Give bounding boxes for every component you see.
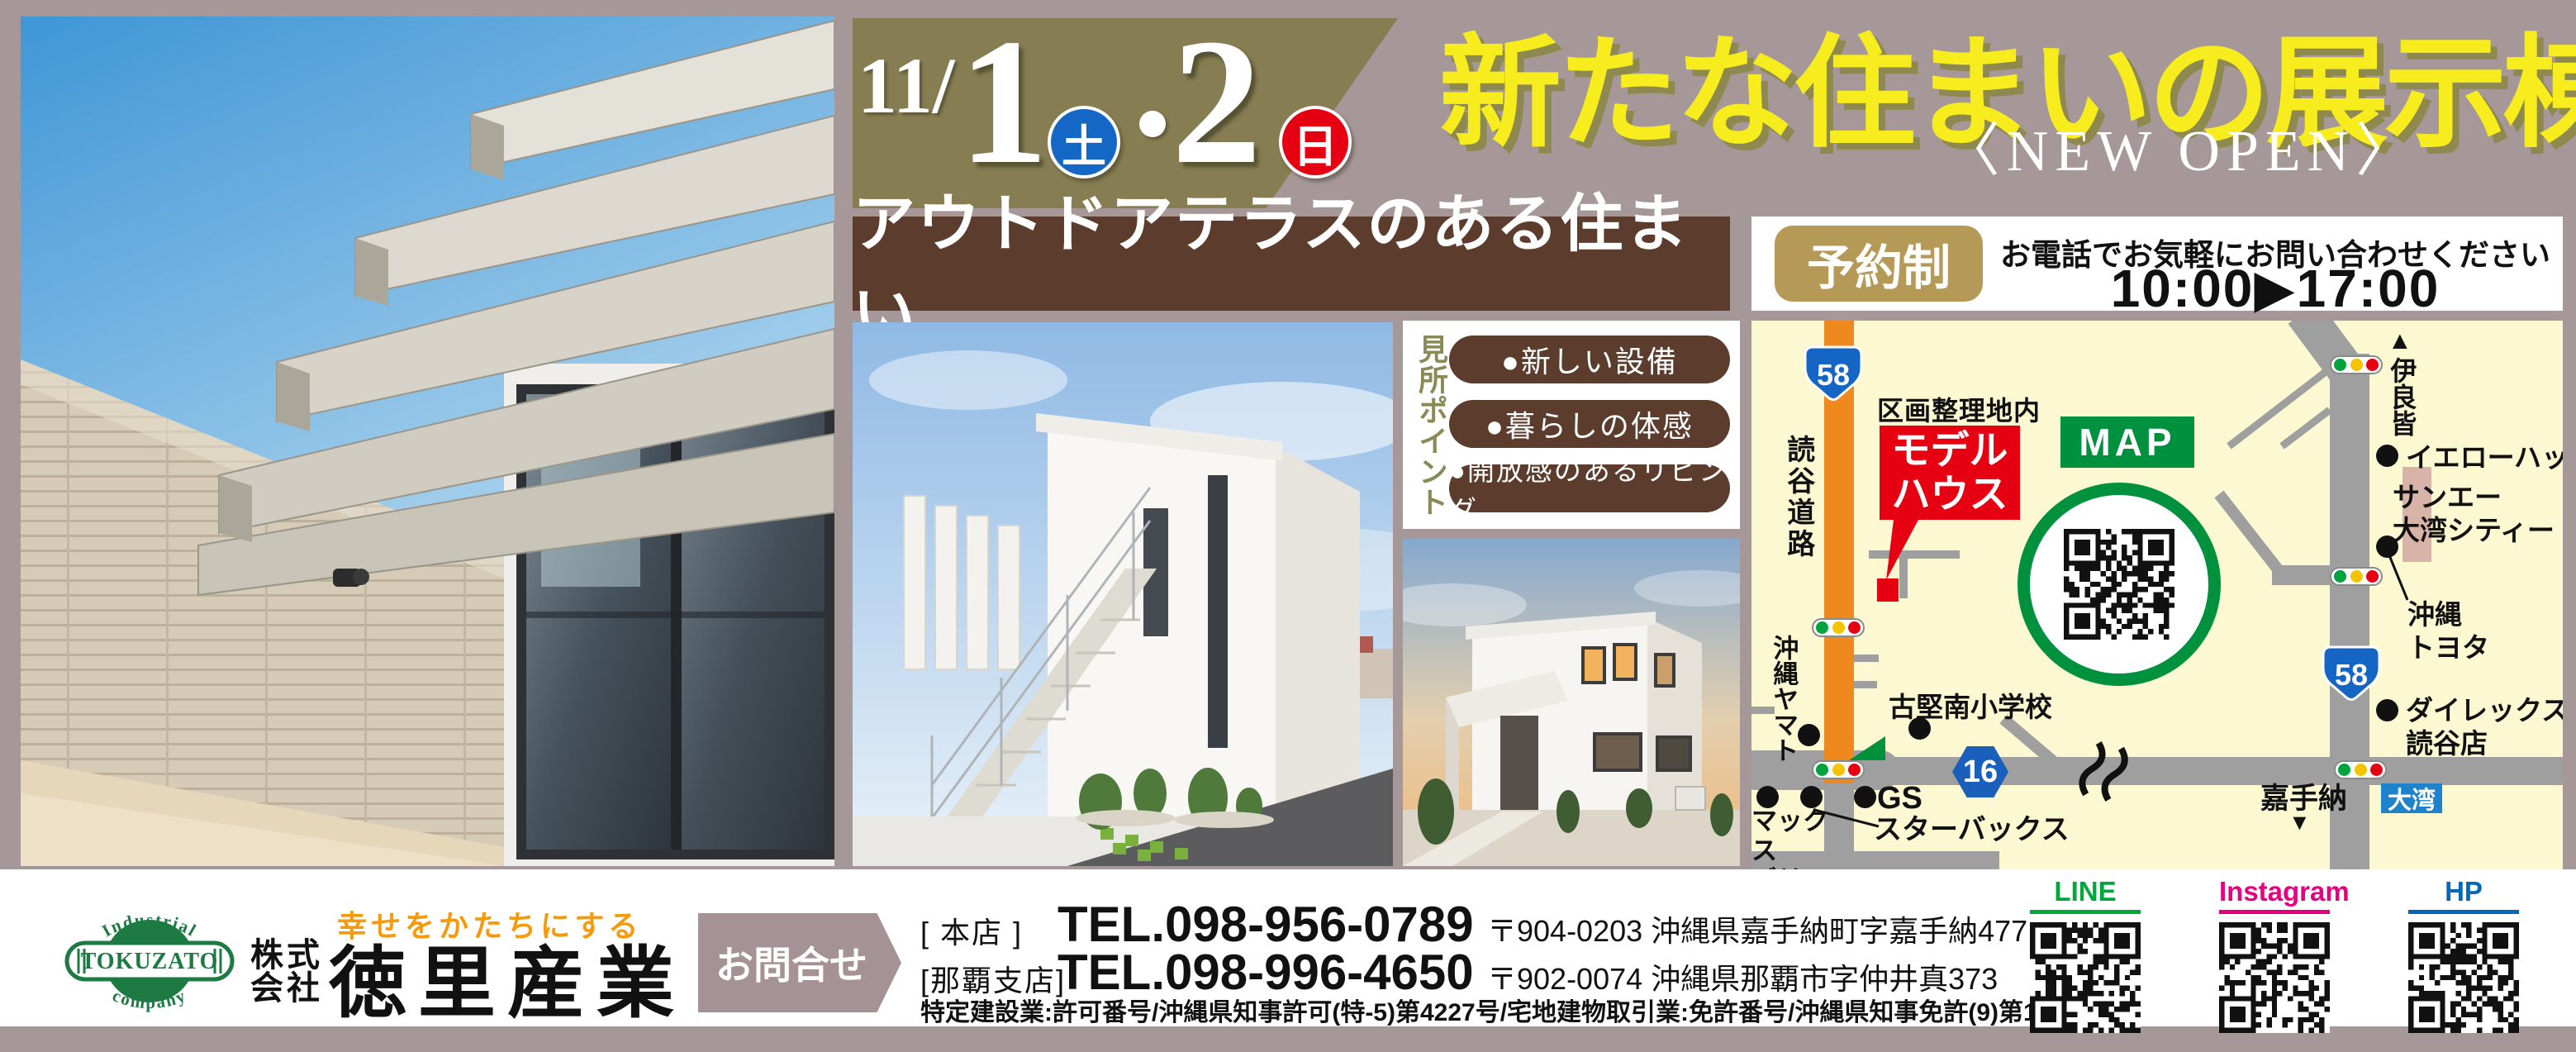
landmark-dot	[2376, 536, 2398, 558]
terrace-photo-art	[21, 17, 834, 866]
route-58-number: 58	[2322, 647, 2381, 703]
point-item-1: ●新しい設備	[1449, 336, 1730, 383]
hp-qr-code	[2408, 922, 2519, 1033]
landmark-dot	[1908, 717, 1931, 740]
yellowhat-label: イエローハット	[2406, 441, 2563, 474]
date-day1-weekday-badge: 土	[1048, 106, 1120, 179]
tokuzato-logo-art: Industrial company TOKUZATO	[62, 904, 237, 1018]
dairex-label: ダイレックス 読谷店	[2406, 694, 2563, 759]
sanei-label: サンエー 大湾シティー	[2393, 481, 2563, 546]
sanei-line2: 大湾シティー	[2393, 515, 2555, 545]
exterior-photo-day-art	[853, 322, 1393, 866]
date-day2: 2	[1172, 3, 1262, 202]
direction-down-marker: ▼	[2288, 810, 2311, 835]
branch-label-honten: [ 本店 ]	[920, 909, 1023, 952]
toyota-line1: 沖縄	[2407, 599, 2462, 630]
traffic-light-icon	[2334, 760, 2387, 779]
model-house-line2: ハウス	[1892, 473, 2008, 516]
exterior-photo-dusk-art	[1403, 539, 1740, 866]
reservation-badge: 予約制	[1775, 226, 1983, 302]
points-heading: 見所ポイント	[1409, 334, 1452, 517]
access-map: 58 58 16 区画整理地内 モデル ハウス MAP 読谷道路 ▲ 伊良皆 イ…	[1751, 321, 2563, 869]
new-open-subtitle: 〈NEW OPEN〉	[1818, 104, 2545, 188]
line-label: LINE	[2030, 876, 2141, 907]
traffic-light-icon	[1812, 760, 1865, 779]
corp-type-line2: 会社	[250, 969, 323, 1007]
route-58-number: 58	[1804, 347, 1863, 403]
hp-underline	[2408, 910, 2519, 914]
sanei-line1: サンエー	[2393, 482, 2502, 512]
traffic-light-icon	[2330, 567, 2383, 586]
point-item-2: ●暮らしの体感	[1449, 400, 1730, 448]
terrace-photo	[21, 17, 834, 866]
okinawa-toyota-label: 沖縄 トヨタ	[2407, 598, 2540, 664]
line-qr-block: LINE	[2030, 876, 2141, 1033]
date-month-num: 11	[858, 41, 933, 130]
maxvalu-label: マックス バリュ	[1751, 807, 1851, 869]
corp-type-line1: 株式	[250, 936, 323, 973]
gs-label: GS	[1877, 780, 1922, 818]
dairex-line1: ダイレックス	[2406, 695, 2563, 726]
okinawa-yamato-label: 沖縄ヤマト	[1768, 635, 1799, 763]
hp-qr-block: HP	[2408, 876, 2519, 1033]
date-day1: 1	[958, 3, 1048, 202]
irami-label: 伊良皆	[2386, 357, 2417, 436]
traffic-light-icon	[2330, 355, 2383, 374]
toyota-line2: トヨタ	[2407, 632, 2489, 663]
reservation-box: 予約制 お電話でお気軽にお問い合わせください♪ 10:00▶17:00	[1751, 217, 2563, 311]
landmark-dot	[1756, 786, 1779, 808]
license-text: 特定建設業:許可番号/沖縄県知事許可(特-5)第4227号/宅地建物取引業:免許…	[920, 992, 2103, 1028]
model-house-line1: モデル	[1892, 429, 2008, 473]
svg-text:TOKUZATO: TOKUZATO	[81, 949, 219, 974]
line-underline	[2030, 910, 2141, 914]
instagram-underline	[2219, 910, 2330, 914]
catch-copy-bar: アウトドアテラスのある住まい	[853, 217, 1730, 311]
flyer: 11/ 1 土 2 日 新たな住まいの展示棟 〈NEW OPEN〉 アウトドアテ…	[0, 0, 2576, 1052]
point-item-3: ●開放感のあるリビング	[1449, 464, 1730, 512]
contact-label-arrow: お問合せ	[698, 913, 901, 1012]
maxvalu-line1: マックス	[1751, 807, 1828, 865]
hp-label: HP	[2408, 876, 2519, 907]
date-day2-weekday-badge: 日	[1279, 106, 1352, 179]
map-heading: MAP	[2060, 417, 2194, 468]
line-qr-code	[2030, 922, 2141, 1033]
landmark-dot	[2376, 699, 2398, 721]
footer-band: Industrial company TOKUZATO 株式 会社 幸せをかたち…	[0, 869, 2576, 1026]
open-hours: 10:00▶17:00	[1996, 258, 2555, 320]
district-label: 区画整理地内	[1877, 395, 2041, 426]
company-name: 徳里産業	[329, 921, 686, 1033]
landmark-dot	[2376, 445, 2398, 467]
date-slash: /	[933, 41, 955, 130]
traffic-light-icon	[1812, 618, 1865, 637]
instagram-qr-block: Instagram	[2219, 876, 2330, 1033]
landmark-dot	[1798, 724, 1820, 746]
exterior-photo-day	[853, 322, 1393, 866]
date-month: 11/	[858, 40, 954, 131]
instagram-qr-code	[2219, 922, 2330, 1033]
date-separator-dot	[1139, 111, 1166, 137]
model-house-label: モデル ハウス	[1880, 426, 2020, 520]
exterior-photo-dusk	[1403, 539, 1740, 866]
starbucks-label: スターバックス	[1874, 813, 2070, 847]
corp-type: 株式 会社	[250, 939, 323, 1005]
yomitan-road-label: 読谷道路	[1781, 435, 1815, 560]
map-qr-code	[2064, 529, 2174, 640]
direction-up-marker: ▲	[2388, 327, 2412, 355]
route-58-shield-bottom: 58	[2322, 644, 2381, 703]
owan-label: 大湾	[2381, 783, 2442, 813]
instagram-label: Instagram	[2219, 876, 2330, 907]
tokuzato-logo: Industrial company TOKUZATO	[62, 904, 237, 1018]
landmark-dot	[1854, 786, 1876, 808]
route-58-shield-top: 58	[1804, 344, 1863, 403]
landmark-dot	[1800, 786, 1823, 808]
highlight-points-box: 見所ポイント ●新しい設備 ●暮らしの体感 ●開放感のあるリビング	[1403, 321, 1740, 529]
dairex-line2: 読谷店	[2406, 728, 2488, 759]
branch-address-honten: 〒904-0203 沖縄県嘉手納町字嘉手納477	[1487, 907, 2027, 950]
map-qr-badge	[2018, 483, 2221, 686]
